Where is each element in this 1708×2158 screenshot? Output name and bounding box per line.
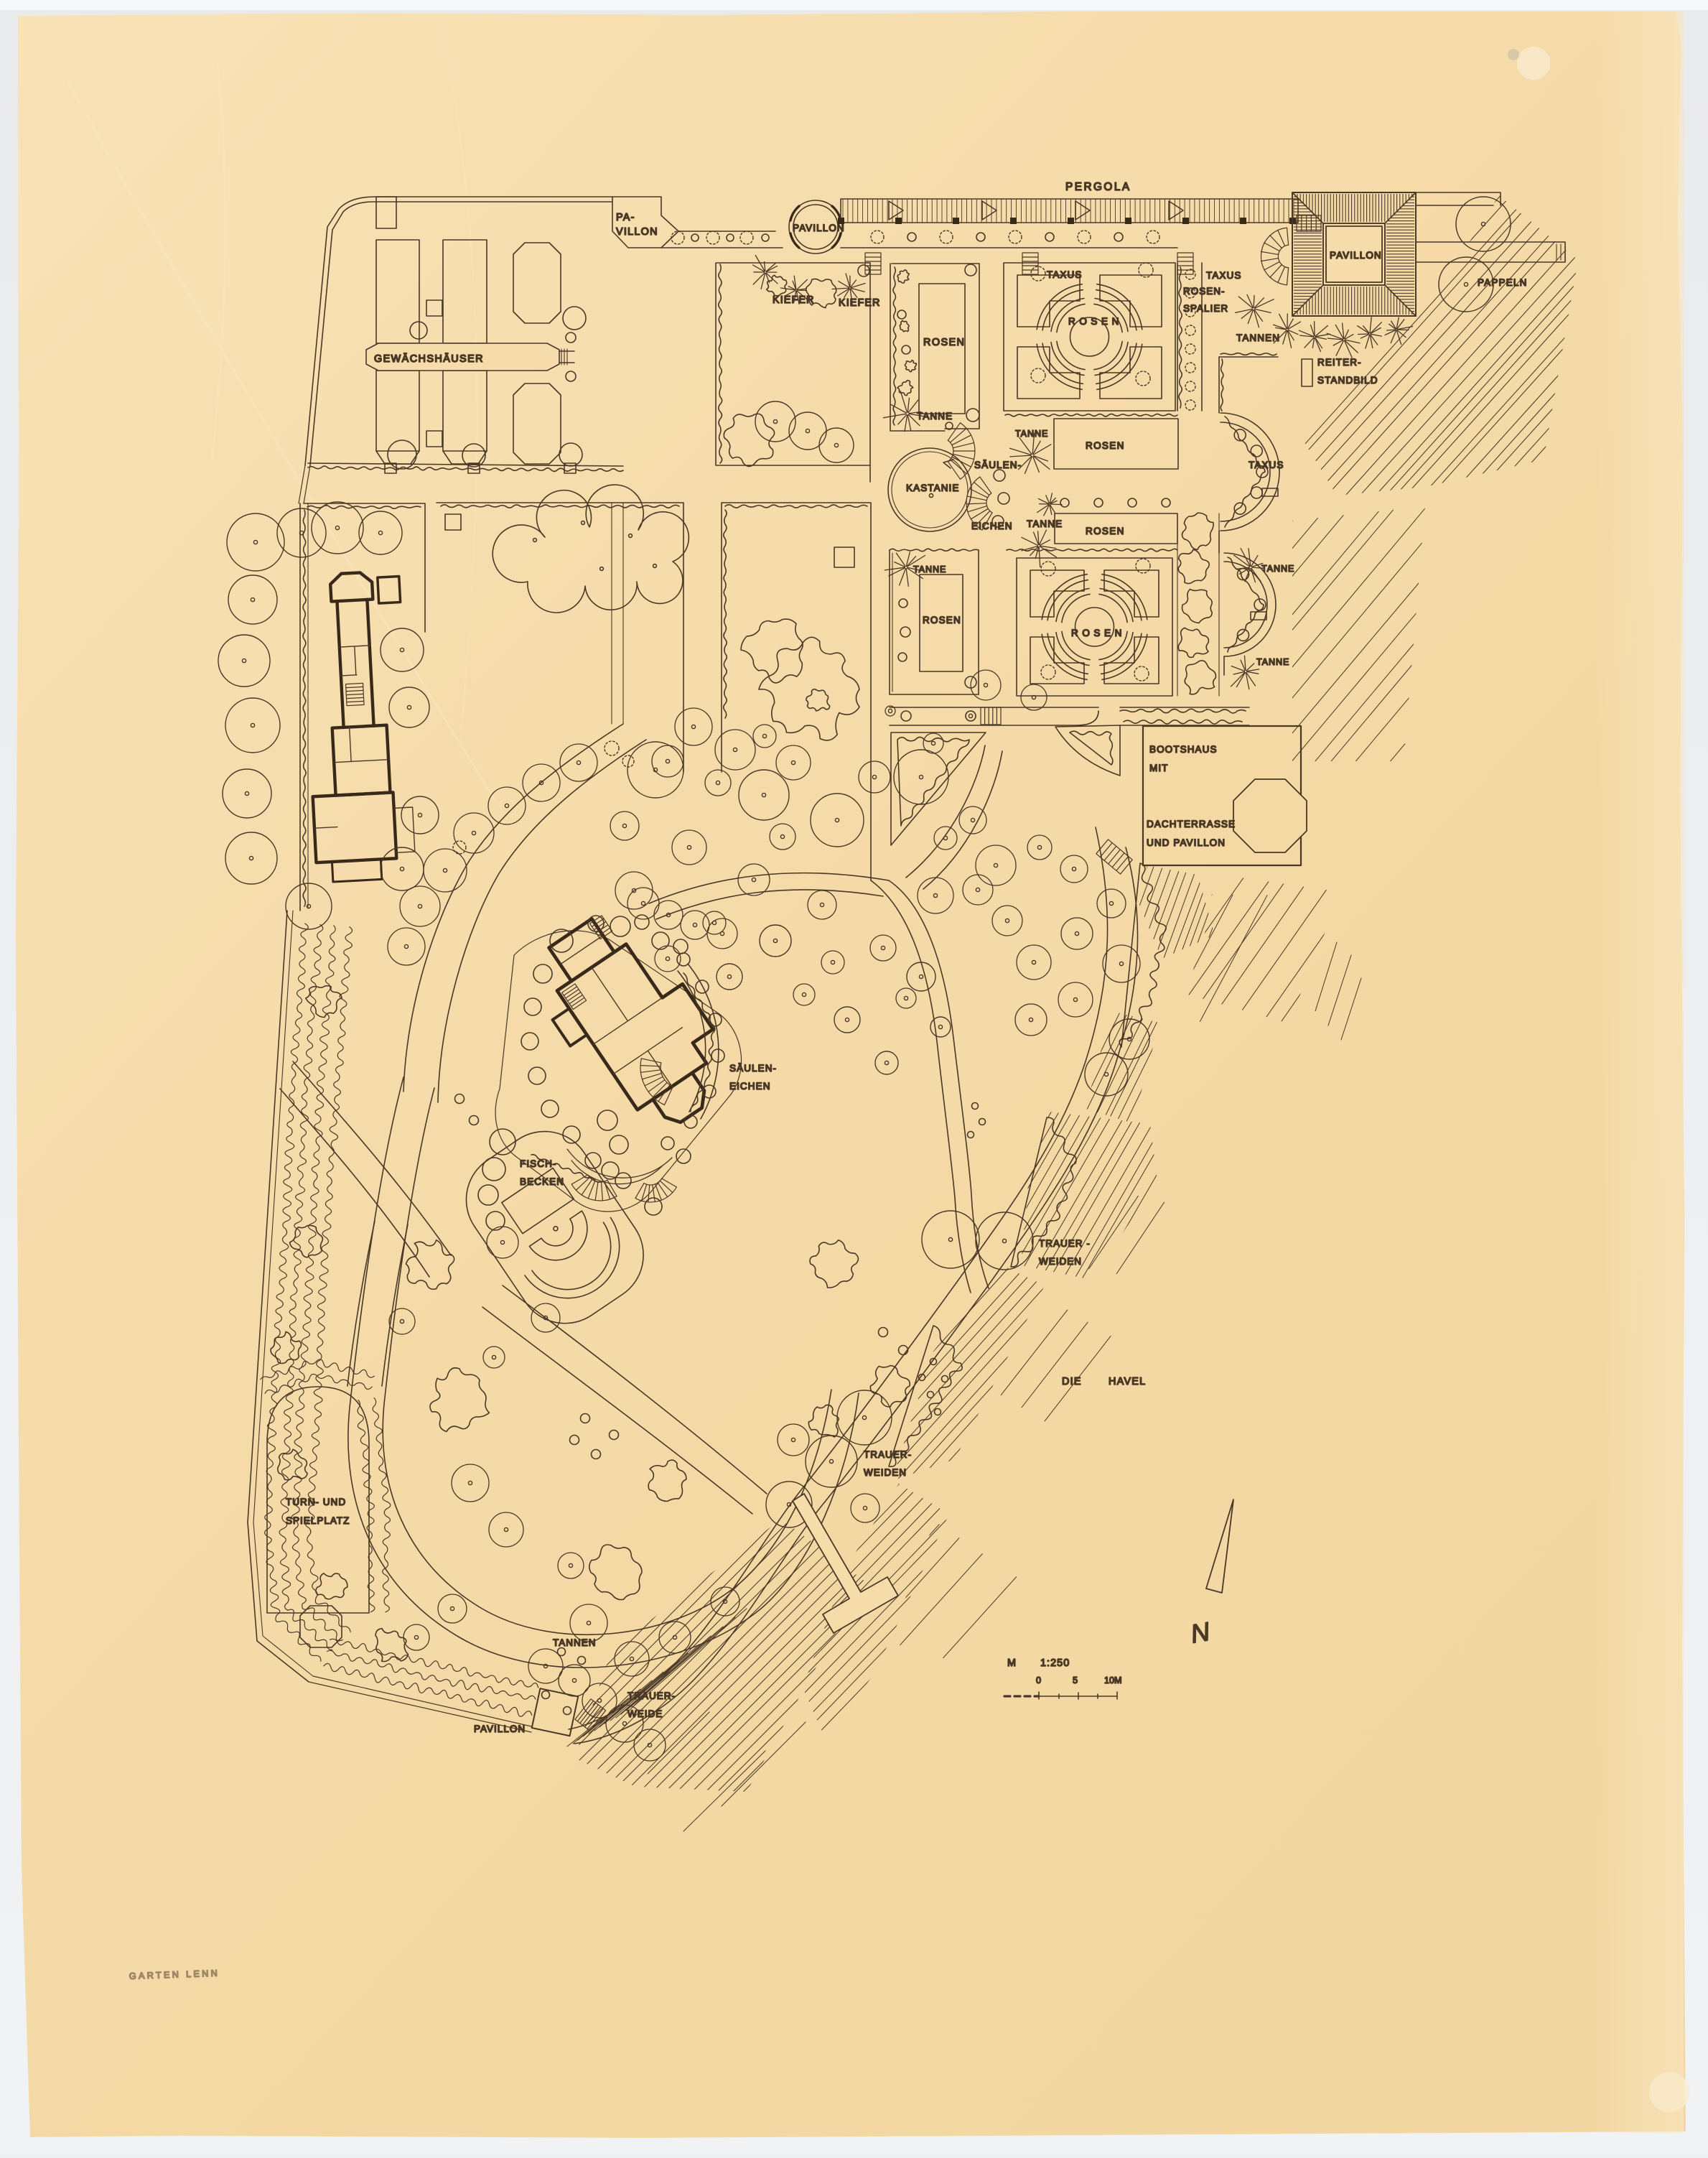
svg-text:TAXUS: TAXUS bbox=[1249, 460, 1284, 470]
svg-text:TANNE: TANNE bbox=[1256, 657, 1289, 667]
svg-text:TANNE: TANNE bbox=[1015, 429, 1048, 439]
svg-text:TURN- UND: TURN- UND bbox=[286, 1497, 346, 1507]
svg-text:TAXUS: TAXUS bbox=[1206, 270, 1241, 281]
svg-text:HAVEL: HAVEL bbox=[1109, 1376, 1146, 1387]
svg-text:TRAUER -: TRAUER - bbox=[1039, 1238, 1091, 1249]
svg-text:1:250: 1:250 bbox=[1040, 1657, 1070, 1669]
svg-text:PAVILLON: PAVILLON bbox=[474, 1724, 526, 1734]
svg-text:10M: 10M bbox=[1104, 1675, 1122, 1685]
svg-text:GEWÄCHSHÄUSER: GEWÄCHSHÄUSER bbox=[374, 353, 484, 365]
svg-text:SPIELPLATZ: SPIELPLATZ bbox=[286, 1515, 350, 1526]
svg-text:KIEFER: KIEFER bbox=[839, 297, 881, 309]
svg-text:ROSEN: ROSEN bbox=[923, 337, 965, 348]
svg-text:0: 0 bbox=[1036, 1675, 1041, 1685]
svg-text:UND PAVILLON: UND PAVILLON bbox=[1147, 837, 1226, 848]
svg-text:TANNE: TANNE bbox=[1027, 518, 1063, 529]
svg-text:FISCH-: FISCH- bbox=[520, 1158, 557, 1169]
svg-text:SPALIER: SPALIER bbox=[1183, 303, 1228, 314]
svg-text:REITER-: REITER- bbox=[1317, 357, 1362, 368]
svg-text:ROSEN-: ROSEN- bbox=[1183, 286, 1226, 297]
svg-text:STANDBILD: STANDBILD bbox=[1317, 375, 1378, 386]
svg-text:PAVILLON: PAVILLON bbox=[1330, 250, 1382, 261]
svg-text:TANNEN: TANNEN bbox=[1236, 332, 1280, 343]
svg-text:TANNE: TANNE bbox=[913, 564, 946, 575]
svg-text:WEIDE: WEIDE bbox=[627, 1708, 663, 1719]
svg-text:R O S E N: R O S E N bbox=[1068, 316, 1119, 327]
svg-text:TANNE: TANNE bbox=[917, 411, 953, 422]
svg-text:BOOTSHAUS: BOOTSHAUS bbox=[1149, 744, 1218, 755]
svg-text:BECKEN: BECKEN bbox=[520, 1176, 564, 1187]
svg-text:SÄULEN-: SÄULEN- bbox=[974, 460, 1022, 470]
svg-text:M: M bbox=[1007, 1657, 1017, 1669]
svg-text:MIT: MIT bbox=[1149, 763, 1169, 773]
svg-text:ROSEN: ROSEN bbox=[923, 615, 961, 625]
svg-text:5: 5 bbox=[1073, 1675, 1078, 1685]
svg-text:ROSEN: ROSEN bbox=[1086, 526, 1125, 536]
svg-text:VILLON: VILLON bbox=[616, 226, 658, 238]
svg-text:PERGOLA: PERGOLA bbox=[1065, 181, 1131, 193]
svg-text:PA-: PA- bbox=[616, 212, 635, 223]
svg-text:R O S E N: R O S E N bbox=[1071, 628, 1122, 638]
svg-text:TRAUER-: TRAUER- bbox=[864, 1449, 912, 1460]
svg-text:EICHEN: EICHEN bbox=[729, 1081, 771, 1092]
svg-text:KIEFER: KIEFER bbox=[773, 294, 815, 306]
svg-text:TANNE: TANNE bbox=[1261, 564, 1294, 574]
svg-text:DACHTERRASSE: DACHTERRASSE bbox=[1147, 819, 1236, 829]
svg-text:SÄULEN-: SÄULEN- bbox=[729, 1063, 777, 1074]
svg-text:TANNEN: TANNEN bbox=[553, 1637, 597, 1648]
svg-text:PAVILLON: PAVILLON bbox=[793, 223, 845, 233]
svg-text:TAXUS: TAXUS bbox=[1047, 269, 1082, 280]
svg-text:KASTANIE: KASTANIE bbox=[906, 483, 960, 493]
svg-text:ROSEN: ROSEN bbox=[1086, 440, 1125, 451]
